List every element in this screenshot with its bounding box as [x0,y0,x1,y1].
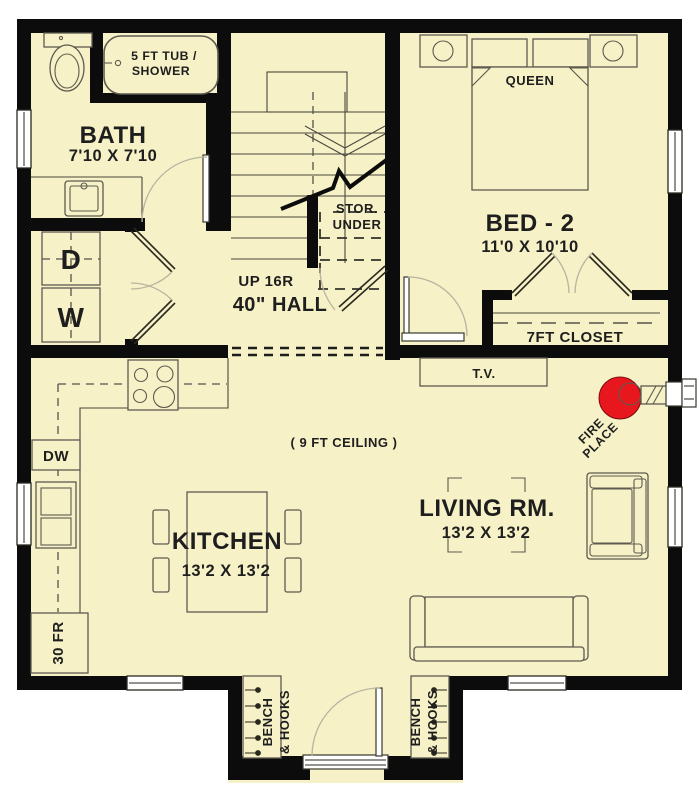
queen-label: QUEEN [506,73,555,88]
pillow-left [472,39,527,67]
wall-kitchen-hall [17,345,228,358]
wall-porch-bottom-left [228,756,310,780]
living-window [668,487,682,547]
flue-vent-cap [682,379,696,407]
armchair [587,473,648,559]
bedroom-window [668,130,682,193]
living-dims: 13'2 X 13'2 [442,524,531,542]
bath-label: BATH [80,122,147,149]
wall-stair-left-top [217,33,231,97]
wall-closet-top-right [632,290,668,300]
washer-label: W [58,302,85,333]
bottom-right-window [508,676,566,690]
floor-plan-drawing: 5 FT TUB / SHOWER BATH 7'10 X 7'10 [0,0,699,800]
chair [153,558,169,592]
nightstand-right [590,35,637,67]
tv-label: T.V. [472,366,495,381]
wall-stair-left [206,95,231,218]
wall-closet-top-left [482,290,512,300]
wall-porch-bottom-right [384,756,463,780]
wall-stair-right [385,33,400,360]
chair [153,510,169,544]
wall-living-hall [385,345,682,358]
svg-text:& HOOKS: & HOOKS [277,690,292,754]
wall-top [17,19,682,33]
hall-label: 40" HALL [233,294,328,316]
nightstand-left [420,35,467,67]
wall-stair-stub [307,195,318,268]
dishwasher-label: DW [43,448,69,465]
ceiling-note: ( 9 FT CEILING ) [291,435,398,450]
kitchen-label: KITCHEN [172,528,282,555]
svg-text:& HOOKS: & HOOKS [425,690,440,754]
kitchen-dims: 13'2 X 13'2 [182,562,271,580]
chair [285,510,301,544]
svg-text:BENCH: BENCH [408,698,423,747]
wall-bath-jamb [206,218,231,231]
bottom-left-window [127,676,183,690]
sofa [410,596,588,661]
living-label: LIVING RM. [419,495,555,522]
floor-plan: 5 FT TUB / SHOWER BATH 7'10 X 7'10 [0,0,699,800]
chair [285,558,301,592]
bed2-dims: 11'0 X 10'10 [481,238,578,256]
up-16r-label: UP 16R [238,273,293,290]
kitchen-window [17,483,31,545]
tub-label-line1: 5 FT TUB / [131,49,197,63]
pillow-right [533,39,588,67]
storage-label-line1: STOR. [336,201,378,216]
storage-label-line2: UNDER [333,217,382,232]
stove [128,360,178,410]
bath-window [17,110,31,168]
fridge-label: 30 FR [50,621,67,664]
dryer-label: D [61,244,82,275]
flue-wall-pass [666,382,682,406]
closet-label: 7FT CLOSET [527,329,624,346]
svg-text:30 FR: 30 FR [50,621,67,664]
tub-label-line2: SHOWER [132,64,190,78]
svg-text:BENCH: BENCH [260,698,275,747]
bed2-label: BED - 2 [486,210,575,237]
bench-right: BENCH & HOOKS [408,676,449,758]
kitchen-sink [36,482,76,548]
bath-dims: 7'10 X 7'10 [69,147,158,165]
door-sill [303,755,388,769]
